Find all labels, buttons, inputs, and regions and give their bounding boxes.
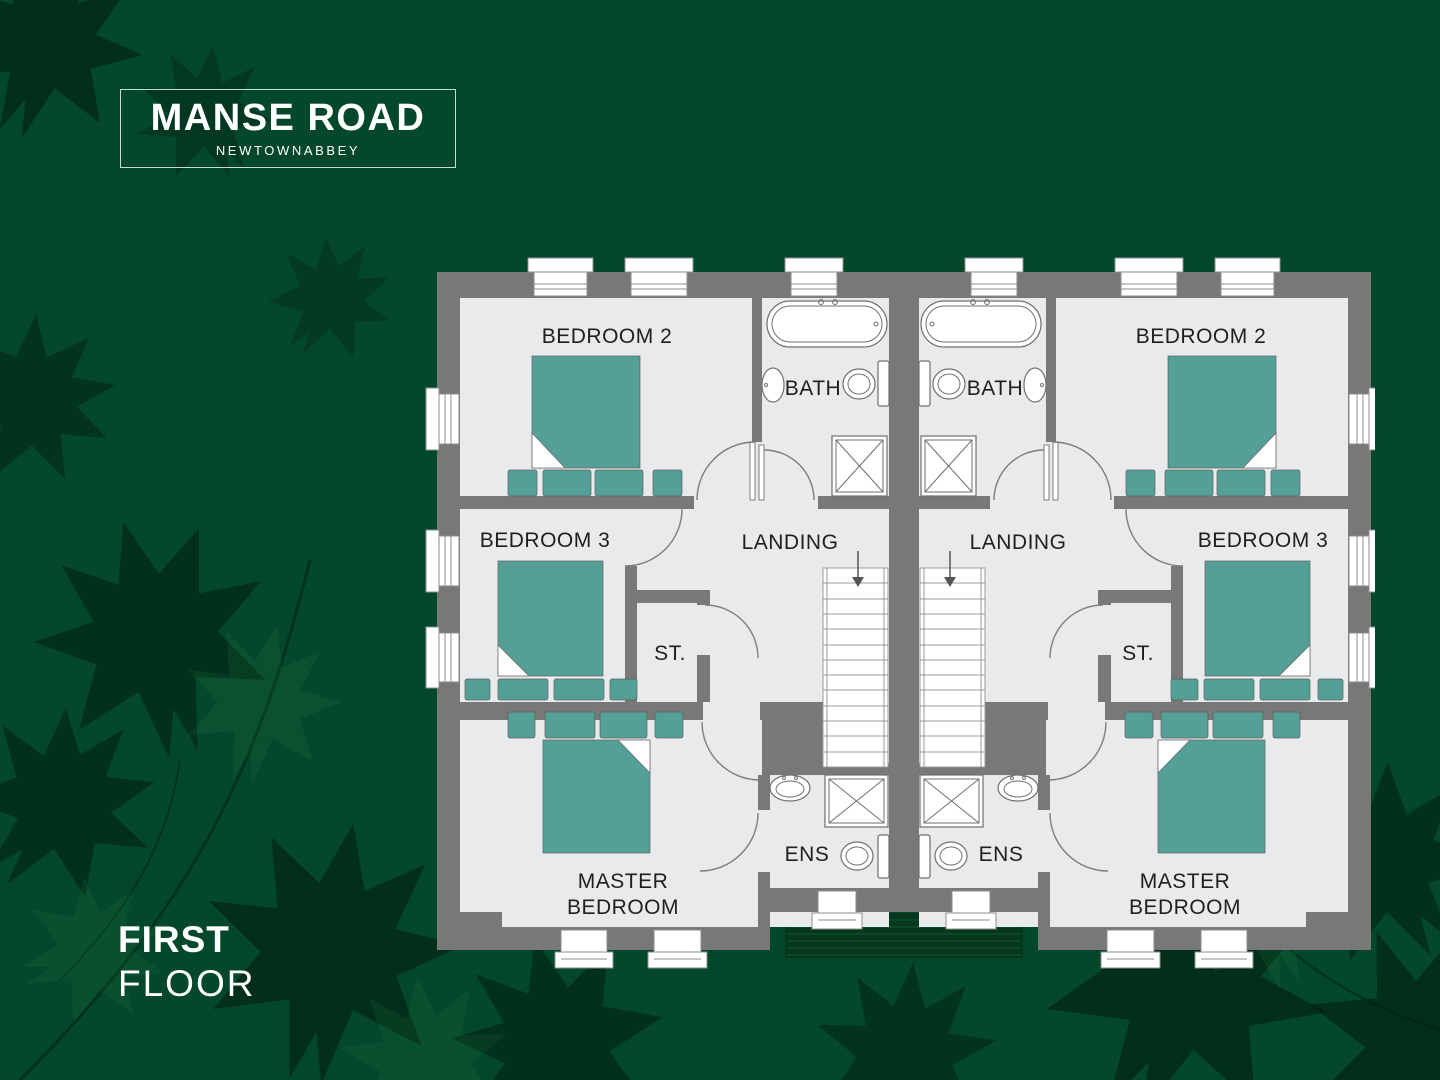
room-label-landing-left: LANDING: [742, 531, 839, 554]
room-label-master1-right: MASTER: [1140, 870, 1231, 893]
development-location: NEWTOWNABBEY: [216, 143, 360, 158]
room-label-store-right: ST.: [1122, 642, 1154, 665]
room-label-bedroom2-right: BEDROOM 2: [1136, 325, 1267, 348]
room-label-ensuite-right: ENS: [979, 843, 1024, 866]
floor-label: FIRST FLOOR: [118, 918, 255, 1006]
floor-label-line2: FLOOR: [118, 962, 255, 1006]
room-label-master2-right: BEDROOM: [1129, 896, 1241, 919]
unit-left: [426, 258, 904, 968]
room-label-landing-right: LANDING: [970, 531, 1067, 554]
room-label-bedroom2-left: BEDROOM 2: [542, 325, 673, 348]
floor-plan: BEDROOM 2 BATH BEDROOM 3 LANDING ST. MAS…: [425, 255, 1375, 990]
room-label-bedroom3-left: BEDROOM 3: [480, 529, 611, 552]
room-label-bath-right: BATH: [967, 377, 1023, 400]
unit-right: [904, 258, 1375, 968]
room-label-master2-left: BEDROOM: [567, 896, 679, 919]
room-label-master1-left: MASTER: [578, 870, 669, 893]
room-label-store-left: ST.: [654, 642, 686, 665]
development-name: MANSE ROAD: [151, 99, 426, 139]
room-label-bedroom3-right: BEDROOM 3: [1198, 529, 1329, 552]
page: MANSE ROAD NEWTOWNABBEY FIRST FLOOR: [0, 0, 1440, 1080]
floor-label-line1: FIRST: [118, 918, 255, 962]
room-label-bath-left: BATH: [785, 377, 841, 400]
room-label-ensuite-left: ENS: [785, 843, 830, 866]
development-title-card: MANSE ROAD NEWTOWNABBEY: [120, 89, 456, 168]
